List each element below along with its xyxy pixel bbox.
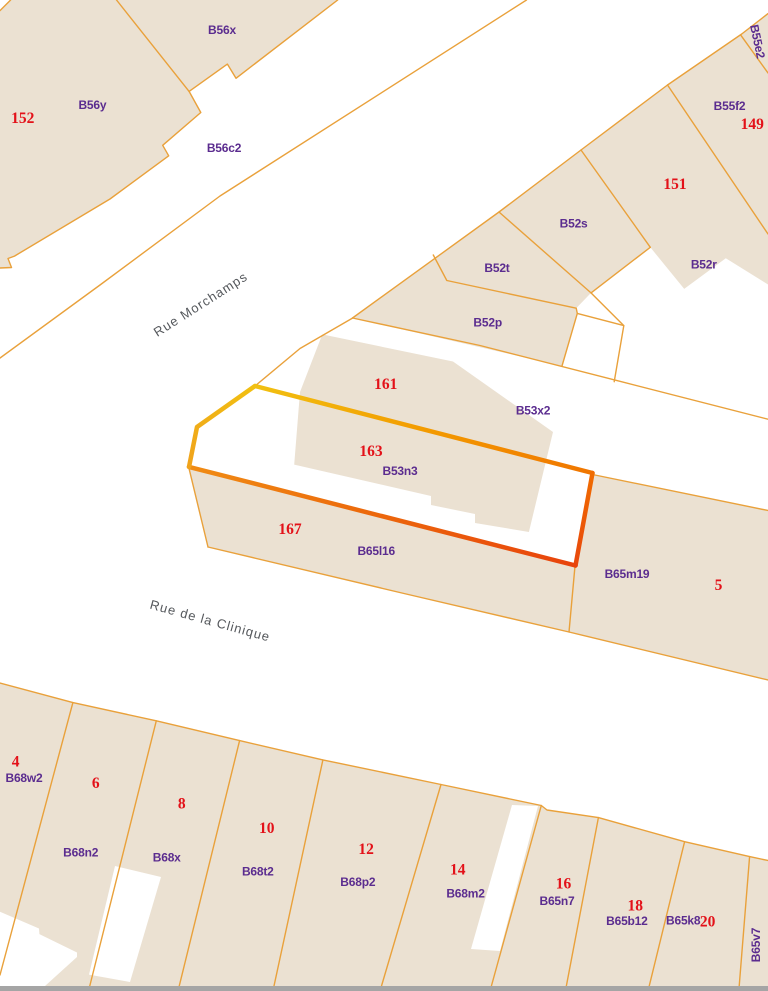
svg-text:149: 149 xyxy=(741,116,765,133)
svg-text:B52r: B52r xyxy=(691,258,717,272)
svg-text:B55f2: B55f2 xyxy=(714,99,746,113)
svg-text:163: 163 xyxy=(359,443,383,460)
svg-text:10: 10 xyxy=(259,820,275,837)
svg-text:6: 6 xyxy=(92,775,100,792)
svg-text:B56x: B56x xyxy=(208,23,236,37)
svg-text:B53n3: B53n3 xyxy=(382,464,418,478)
svg-text:B65n7: B65n7 xyxy=(539,894,575,908)
svg-text:B68n2: B68n2 xyxy=(63,846,99,860)
svg-text:12: 12 xyxy=(358,841,374,858)
svg-text:B52t: B52t xyxy=(484,261,509,275)
svg-text:B65m19: B65m19 xyxy=(605,567,650,581)
svg-text:151: 151 xyxy=(663,176,686,193)
svg-text:B65l16: B65l16 xyxy=(357,544,395,558)
svg-text:152: 152 xyxy=(11,110,35,127)
svg-text:4: 4 xyxy=(12,754,20,771)
svg-text:B68p2: B68p2 xyxy=(340,875,376,889)
svg-text:B65b12: B65b12 xyxy=(606,914,648,928)
svg-text:161: 161 xyxy=(374,376,397,393)
svg-text:B56c2: B56c2 xyxy=(207,141,242,155)
svg-text:B52s: B52s xyxy=(560,217,588,231)
svg-text:B68x: B68x xyxy=(153,851,181,865)
svg-text:B68w2: B68w2 xyxy=(5,771,43,785)
svg-text:B65k8: B65k8 xyxy=(666,914,701,928)
svg-text:B68t2: B68t2 xyxy=(242,865,274,879)
svg-text:B56y: B56y xyxy=(78,98,106,112)
svg-text:B65v7: B65v7 xyxy=(749,927,763,962)
svg-text:B52p: B52p xyxy=(473,316,502,330)
svg-text:8: 8 xyxy=(178,796,186,813)
svg-text:B68m2: B68m2 xyxy=(446,887,485,901)
svg-text:14: 14 xyxy=(450,862,466,879)
svg-text:16: 16 xyxy=(556,876,572,893)
svg-text:167: 167 xyxy=(278,521,302,538)
svg-text:18: 18 xyxy=(628,898,644,915)
svg-text:B53x2: B53x2 xyxy=(516,404,551,418)
svg-text:5: 5 xyxy=(715,577,723,594)
svg-text:20: 20 xyxy=(700,914,716,931)
